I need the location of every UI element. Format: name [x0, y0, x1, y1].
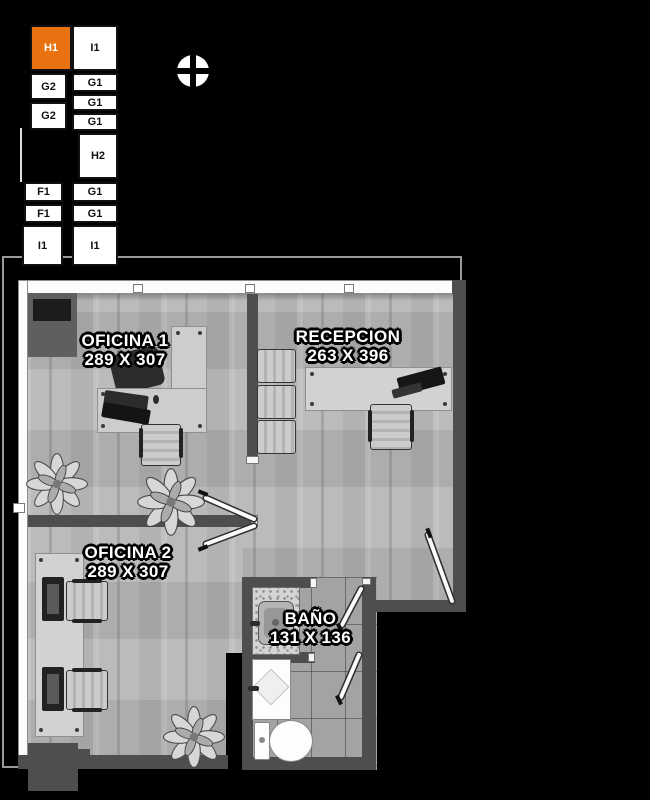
keyplan-unit-g1-a[interactable]: G1	[72, 73, 118, 92]
room-dims: 289 X 307	[55, 350, 195, 369]
door-leaf-entry	[428, 535, 452, 601]
room-dims: 131 X 136	[248, 628, 373, 647]
door-leaf-oficina2	[206, 526, 254, 544]
room-label-oficina1: OFICINA 1 289 X 307	[55, 331, 195, 369]
keyplan-unit-g1-e[interactable]: G1	[72, 204, 118, 223]
door-leaves	[206, 498, 452, 697]
keyplan-unit-g1-d[interactable]: G1	[72, 182, 118, 202]
keyplan-unit-f1-b[interactable]: F1	[24, 204, 63, 223]
door-leaf-bano-2	[341, 655, 359, 697]
door-hinges	[198, 489, 433, 705]
plant-oficina1	[27, 454, 88, 515]
keyplan-unit-i1-right[interactable]: I1	[72, 225, 118, 266]
keyplan-unit-g1-b[interactable]: G1	[72, 94, 118, 111]
room-dims: 263 X 396	[278, 346, 418, 365]
keyplan-unit-i1-top[interactable]: I1	[72, 25, 118, 71]
door-leaf-oficina1	[206, 498, 254, 519]
floorplan-canvas: OFICINA 1 289 X 307 RECEPCION 263 X 396 …	[0, 0, 650, 800]
keyplan-unit-h2[interactable]: H2	[78, 133, 118, 179]
room-name: OFICINA 1	[55, 331, 195, 350]
room-label-bano: BAÑO 131 X 136	[248, 609, 373, 647]
room-label-oficina2: OFICINA 2 289 X 307	[58, 543, 198, 581]
compass-bar-horizontal	[172, 68, 214, 74]
keyplan-unit-f1-a[interactable]: F1	[24, 182, 63, 202]
room-name: OFICINA 2	[58, 543, 198, 562]
keyplan-unit-g2-b[interactable]: G2	[30, 102, 67, 130]
room-name: RECEPCION	[278, 327, 418, 346]
room-dims: 289 X 307	[58, 562, 198, 581]
keyplan-unit-g1-c[interactable]: G1	[72, 113, 118, 131]
room-label-recepcion: RECEPCION 263 X 396	[278, 327, 418, 365]
keyplan-unit-g2-a[interactable]: G2	[30, 73, 67, 100]
keyplan-core-outline	[20, 128, 22, 182]
plant-oficina2-bottom	[164, 707, 225, 768]
keyplan-unit-i1-left[interactable]: I1	[22, 225, 63, 266]
room-name: BAÑO	[248, 609, 373, 628]
keyplan-unit-h1[interactable]: H1	[30, 25, 72, 71]
plant-oficina2-top	[138, 469, 205, 536]
